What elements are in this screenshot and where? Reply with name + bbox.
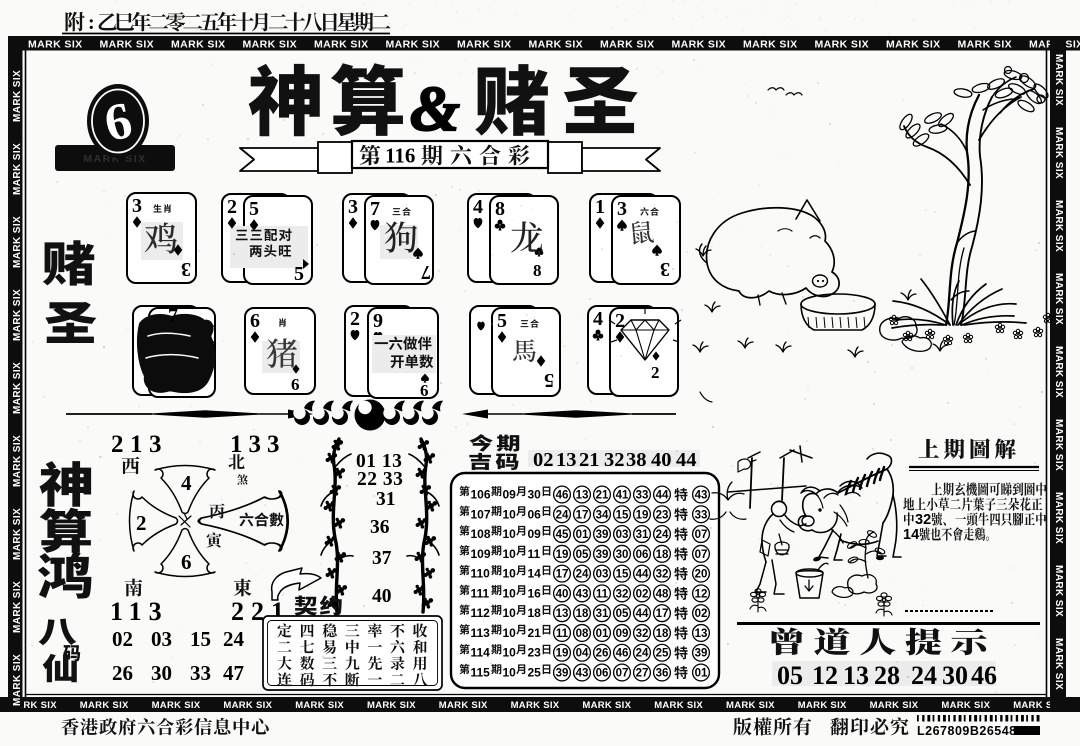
svg-text:MARK SIX: MARK SIX <box>815 39 870 51</box>
svg-text:5: 5 <box>249 198 259 220</box>
svg-text:10: 10 <box>503 507 517 521</box>
svg-text:13: 13 <box>695 628 708 640</box>
svg-text:06: 06 <box>528 507 542 521</box>
svg-text:MARK SIX: MARK SIX <box>80 700 129 711</box>
svg-text:23: 23 <box>528 646 542 660</box>
svg-text:7: 7 <box>370 198 380 220</box>
svg-text:MARK SIX: MARK SIX <box>529 39 584 51</box>
svg-text:10: 10 <box>503 567 517 581</box>
svg-text:39: 39 <box>695 648 708 660</box>
svg-text:MARK SIX: MARK SIX <box>12 362 23 414</box>
svg-text:06: 06 <box>596 668 609 680</box>
svg-text:36: 36 <box>370 517 390 538</box>
svg-text:3: 3 <box>660 258 670 280</box>
svg-text:6: 6 <box>181 550 192 574</box>
svg-text:5: 5 <box>544 369 554 391</box>
svg-text:32: 32 <box>636 628 649 640</box>
svg-text:13: 13 <box>556 608 569 620</box>
svg-text:110: 110 <box>471 567 491 581</box>
svg-text:6: 6 <box>291 375 300 394</box>
svg-text:MARK SIX: MARK SIX <box>958 39 1013 51</box>
svg-text:109: 109 <box>471 547 491 561</box>
svg-text:10: 10 <box>503 547 517 561</box>
svg-text:18: 18 <box>528 606 542 620</box>
svg-text:3: 3 <box>132 195 142 217</box>
svg-text:MARK SIX: MARK SIX <box>511 700 560 711</box>
svg-text:2: 2 <box>651 363 660 382</box>
svg-text:MARK SIX: MARK SIX <box>582 700 631 711</box>
svg-text:07: 07 <box>616 668 629 680</box>
svg-text:MARK SIX: MARK SIX <box>798 700 847 711</box>
svg-text:02: 02 <box>533 449 554 471</box>
svg-text:17: 17 <box>656 608 669 620</box>
svg-text:26: 26 <box>596 648 609 660</box>
svg-text::: : <box>88 12 95 34</box>
svg-text:1: 1 <box>595 196 605 218</box>
svg-text:MARK SIX: MARK SIX <box>886 39 941 51</box>
svg-text:32: 32 <box>656 569 669 581</box>
svg-text:32: 32 <box>604 449 625 471</box>
svg-text:39: 39 <box>556 668 569 680</box>
svg-text:115: 115 <box>471 666 491 680</box>
svg-text:21: 21 <box>579 449 600 471</box>
svg-text:116: 116 <box>385 144 415 168</box>
svg-text:44: 44 <box>636 608 649 620</box>
svg-text:13: 13 <box>576 490 589 502</box>
svg-text:3: 3 <box>617 198 627 220</box>
svg-text:MARK SIX: MARK SIX <box>100 39 155 51</box>
svg-text:4: 4 <box>593 308 603 330</box>
svg-text:28: 28 <box>874 661 900 690</box>
svg-text:02: 02 <box>112 627 133 651</box>
svg-text:MARK SIX: MARK SIX <box>1053 273 1064 325</box>
svg-text:13: 13 <box>843 661 869 690</box>
svg-text:33: 33 <box>636 490 649 502</box>
svg-text:10: 10 <box>503 586 517 600</box>
svg-text:MARK SIX: MARK SIX <box>726 700 775 711</box>
svg-text:24: 24 <box>656 529 669 541</box>
svg-text:7: 7 <box>421 261 431 283</box>
svg-text:39: 39 <box>596 549 609 561</box>
svg-text:3: 3 <box>181 258 191 280</box>
svg-text:8: 8 <box>533 261 542 280</box>
svg-text:18: 18 <box>576 608 589 620</box>
svg-text:24: 24 <box>911 661 937 690</box>
svg-text:&: & <box>410 73 460 144</box>
svg-text:30: 30 <box>942 661 968 690</box>
svg-text:17: 17 <box>556 569 569 581</box>
svg-text:21: 21 <box>528 626 542 640</box>
svg-text:MARK SIX: MARK SIX <box>1053 127 1064 179</box>
svg-text:MARK SIX: MARK SIX <box>12 581 23 633</box>
svg-text:05: 05 <box>777 661 803 690</box>
svg-text:10: 10 <box>503 606 517 620</box>
svg-text:MARK SIX: MARK SIX <box>654 700 703 711</box>
svg-text:113: 113 <box>110 597 169 626</box>
svg-text:30: 30 <box>528 488 542 502</box>
svg-text:44: 44 <box>636 569 649 581</box>
svg-text:MARK SIX: MARK SIX <box>1053 492 1064 544</box>
svg-text:213: 213 <box>111 431 168 458</box>
svg-text:108: 108 <box>471 527 491 541</box>
svg-text:13: 13 <box>556 449 577 471</box>
svg-text:25: 25 <box>656 648 669 660</box>
svg-text:2: 2 <box>136 511 147 535</box>
svg-text:03: 03 <box>151 627 172 651</box>
svg-text:MARK SIX: MARK SIX <box>12 435 23 487</box>
svg-text:MARK SIX: MARK SIX <box>243 39 298 51</box>
svg-text:14: 14 <box>528 567 542 581</box>
svg-text:12: 12 <box>695 588 708 600</box>
svg-text:46: 46 <box>616 648 629 660</box>
svg-text:MARK SIX: MARK SIX <box>12 216 23 268</box>
svg-text:MARK SIX: MARK SIX <box>1053 200 1064 252</box>
svg-text:38: 38 <box>626 449 647 471</box>
svg-text:2: 2 <box>615 310 625 332</box>
svg-text:33: 33 <box>190 661 211 685</box>
svg-text:07: 07 <box>695 549 708 561</box>
svg-text:23: 23 <box>656 509 669 521</box>
svg-text:31: 31 <box>636 529 649 541</box>
svg-text:11: 11 <box>528 547 541 561</box>
svg-text:14: 14 <box>903 527 919 543</box>
svg-text:09: 09 <box>503 488 517 502</box>
svg-text:37: 37 <box>372 548 392 569</box>
svg-text:MARK SIX: MARK SIX <box>743 39 798 51</box>
svg-text:40: 40 <box>556 588 569 600</box>
svg-text:10: 10 <box>503 646 517 660</box>
svg-text:MARK SIX: MARK SIX <box>457 39 512 51</box>
svg-text:40: 40 <box>372 586 392 607</box>
svg-text:113: 113 <box>471 626 491 640</box>
svg-text:MARK SIX: MARK SIX <box>223 700 272 711</box>
svg-text:19: 19 <box>556 549 569 561</box>
svg-text:19: 19 <box>556 648 569 660</box>
svg-text:MARK SIX: MARK SIX <box>1053 54 1064 106</box>
svg-text:21: 21 <box>596 490 609 502</box>
svg-text:32: 32 <box>915 512 931 528</box>
svg-text:03: 03 <box>616 529 629 541</box>
svg-text:MARK SIX: MARK SIX <box>171 39 226 51</box>
svg-text:01: 01 <box>576 529 589 541</box>
svg-text:47: 47 <box>223 661 244 685</box>
svg-text:MARK SIX: MARK SIX <box>12 508 23 560</box>
svg-text:12: 12 <box>812 661 838 690</box>
svg-text:43: 43 <box>576 668 589 680</box>
svg-text:MARK SIX: MARK SIX <box>12 654 23 706</box>
svg-text:01: 01 <box>596 628 609 640</box>
svg-text:5: 5 <box>497 310 507 332</box>
svg-text:10: 10 <box>503 527 517 541</box>
svg-text:15: 15 <box>616 569 629 581</box>
svg-text:MARK SIX: MARK SIX <box>941 700 990 711</box>
svg-text:MARK SIX: MARK SIX <box>439 700 488 711</box>
svg-text:33: 33 <box>695 509 708 521</box>
svg-text:24: 24 <box>636 648 649 660</box>
svg-text:31: 31 <box>596 608 609 620</box>
svg-text:08: 08 <box>576 628 589 640</box>
svg-text:30: 30 <box>616 549 629 561</box>
svg-text:27: 27 <box>636 668 649 680</box>
svg-text:15: 15 <box>190 627 211 651</box>
svg-text:MARK SIX: MARK SIX <box>1053 419 1064 471</box>
svg-text:43: 43 <box>576 588 589 600</box>
svg-text:15: 15 <box>616 509 629 521</box>
svg-text:106: 106 <box>471 488 491 502</box>
svg-text:36: 36 <box>656 668 669 680</box>
svg-text:34: 34 <box>596 509 609 521</box>
svg-text:107: 107 <box>471 507 491 521</box>
svg-text:8: 8 <box>495 198 505 220</box>
svg-text:7: 7 <box>168 305 178 327</box>
svg-text:133: 133 <box>230 431 286 458</box>
svg-text:48: 48 <box>656 588 669 600</box>
svg-text:MARK SIX: MARK SIX <box>1053 346 1064 398</box>
svg-text:MARK SIX: MARK SIX <box>152 700 201 711</box>
svg-text:20: 20 <box>695 569 708 581</box>
svg-text:46: 46 <box>556 490 569 502</box>
svg-text:2: 2 <box>227 196 237 218</box>
svg-text:MARK SIX: MARK SIX <box>870 700 919 711</box>
svg-text:45: 45 <box>556 529 569 541</box>
svg-text:3: 3 <box>348 196 358 218</box>
svg-text:26: 26 <box>112 661 133 685</box>
svg-text:MARK SIX: MARK SIX <box>386 39 441 51</box>
svg-text:01: 01 <box>695 668 708 680</box>
svg-text:03: 03 <box>596 569 609 581</box>
svg-text:16: 16 <box>528 586 542 600</box>
svg-text:19: 19 <box>636 509 649 521</box>
svg-text:4: 4 <box>181 471 192 495</box>
svg-text:40: 40 <box>651 449 672 471</box>
svg-text:46: 46 <box>971 661 997 690</box>
svg-text:L267809B26548: L267809B26548 <box>917 724 1017 738</box>
svg-text:09: 09 <box>616 628 629 640</box>
svg-text:07: 07 <box>695 529 708 541</box>
svg-text:24: 24 <box>576 569 589 581</box>
svg-text:10: 10 <box>503 666 517 680</box>
svg-text:24: 24 <box>223 627 245 651</box>
svg-text:24: 24 <box>556 509 569 521</box>
svg-text:43: 43 <box>695 490 708 502</box>
svg-text:02: 02 <box>636 588 649 600</box>
svg-text:11: 11 <box>556 628 569 640</box>
svg-text:MARK SIX: MARK SIX <box>28 39 83 51</box>
svg-text:10: 10 <box>503 626 517 640</box>
svg-text:31: 31 <box>376 489 396 510</box>
svg-text:22 33: 22 33 <box>357 469 403 490</box>
svg-text:112: 112 <box>471 606 491 620</box>
svg-text:06: 06 <box>636 549 649 561</box>
svg-text:MARK SIX: MARK SIX <box>1053 638 1064 690</box>
svg-text:44: 44 <box>656 490 669 502</box>
svg-text:41: 41 <box>616 490 629 502</box>
svg-text:05: 05 <box>576 549 589 561</box>
svg-text:18: 18 <box>656 549 669 561</box>
svg-text:MARK SIX: MARK SIX <box>12 70 23 122</box>
svg-text:39: 39 <box>596 529 609 541</box>
svg-text:6: 6 <box>420 381 429 400</box>
svg-text:5: 5 <box>294 263 304 285</box>
svg-text:30: 30 <box>151 661 172 685</box>
svg-text:32: 32 <box>616 588 629 600</box>
svg-text:44: 44 <box>676 449 697 471</box>
svg-text:25: 25 <box>528 666 542 680</box>
svg-text:111: 111 <box>471 586 490 600</box>
svg-text:9: 9 <box>373 310 383 332</box>
svg-text:04: 04 <box>576 648 589 660</box>
svg-text:09: 09 <box>528 527 542 541</box>
svg-text:02: 02 <box>695 608 708 620</box>
svg-text:MARK SIX: MARK SIX <box>12 289 23 341</box>
svg-text:17: 17 <box>576 509 589 521</box>
svg-text:2: 2 <box>350 308 360 330</box>
svg-text:MARK SIX: MARK SIX <box>12 143 23 195</box>
svg-text:18: 18 <box>656 628 669 640</box>
svg-text:6: 6 <box>250 310 260 332</box>
svg-text:4: 4 <box>473 196 483 218</box>
svg-text:11: 11 <box>596 588 609 600</box>
svg-text:05: 05 <box>616 608 629 620</box>
svg-text:MARK SIX: MARK SIX <box>672 39 727 51</box>
svg-text:MARK SIX: MARK SIX <box>600 39 655 51</box>
svg-text:MARK SIX: MARK SIX <box>1053 565 1064 617</box>
svg-text:MARK SIX: MARK SIX <box>367 700 416 711</box>
svg-text:114: 114 <box>471 646 491 660</box>
svg-text:MARK SIX: MARK SIX <box>314 39 369 51</box>
svg-text:MARK SIX: MARK SIX <box>295 700 344 711</box>
